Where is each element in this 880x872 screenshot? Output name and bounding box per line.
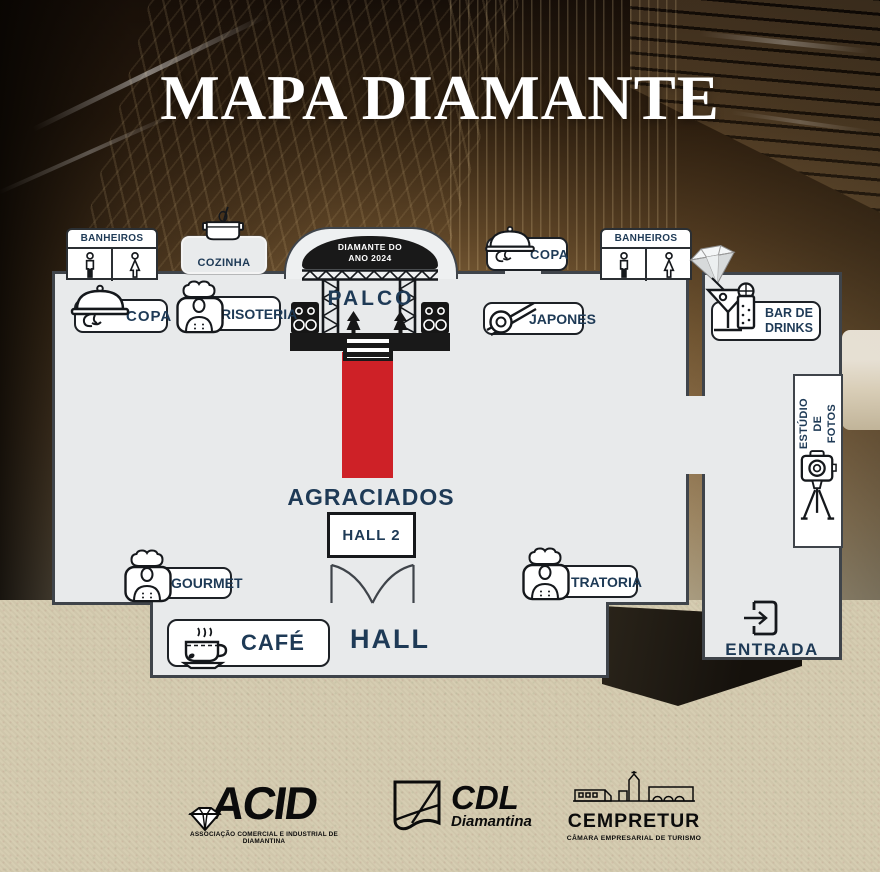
sushi-chopsticks-icon — [484, 296, 538, 338]
female-figure-icon — [127, 252, 143, 279]
estudio-de-fotos-label: ESTÚDIO DE FOTOS — [797, 399, 838, 450]
entrance-arrow-door-icon — [741, 597, 781, 639]
cempretur-wordmark: CEMPRETUR — [560, 810, 708, 833]
stage-plant-left-icon — [346, 311, 361, 334]
male-stall — [68, 249, 111, 281]
cloche-hand-icon — [482, 222, 538, 268]
chef-icon — [176, 280, 224, 334]
logo-cdl: CDL Diamantina — [385, 774, 540, 844]
cempretur-skyline-icon — [571, 770, 697, 808]
coffee-cup-icon — [178, 626, 232, 670]
camera-tripod-icon — [799, 450, 837, 532]
cozinha-label: COZINHA — [198, 257, 251, 272]
stage-plant-right-icon — [393, 311, 408, 334]
cloche-hand-icon — [67, 282, 133, 332]
hall2-box: HALL 2 — [327, 512, 416, 558]
cdl-wordmark: CDL — [451, 782, 532, 813]
female-figure-icon — [661, 252, 677, 279]
stair-steps — [347, 339, 389, 358]
cooking-pot-icon — [198, 205, 248, 245]
cdl-text-block: CDL Diamantina — [451, 782, 532, 830]
cempretur-tagline: CÂMARA EMPRESARIAL DE TURISMO — [560, 835, 708, 842]
speaker-right-icon — [420, 301, 450, 335]
banheiros-left-label: BANHEIROS — [68, 230, 156, 249]
banquet-table — [842, 330, 880, 430]
cdl-subtitle: Diamantina — [451, 813, 532, 830]
acid-diamond-icon — [185, 804, 225, 834]
doorway-opening-right — [684, 396, 707, 474]
cdl-page-icon — [385, 776, 449, 840]
hall-label: HALL — [320, 624, 460, 655]
double-door-icon — [329, 563, 416, 605]
agraciados-label: AGRACIADOS — [236, 484, 506, 511]
entrada-label: ENTRADA — [702, 640, 842, 660]
male-stall — [602, 249, 645, 281]
stage-stairs — [343, 336, 393, 361]
hall2-label: HALL 2 — [342, 527, 400, 544]
cocktail-icon — [700, 276, 768, 340]
banheiros-left: BANHEIROS — [66, 228, 158, 280]
venue-map-poster: MAPA DIAMANTE BANHEIROS — [0, 0, 880, 872]
logo-acid: ACID ASSOCIAÇÃO COMERCIAL E INDUSTRIAL D… — [175, 780, 353, 845]
logo-cempretur: CEMPRETUR CÂMARA EMPRESARIAL DE TURISMO — [560, 770, 708, 842]
female-stall — [111, 249, 156, 281]
banheiros-left-stalls — [68, 249, 156, 281]
male-figure-icon — [82, 252, 98, 279]
red-carpet — [342, 352, 393, 478]
chef-icon — [521, 547, 571, 601]
page-title: MAPA DIAMANTE — [0, 62, 880, 135]
male-figure-icon — [616, 252, 632, 279]
chef-icon — [124, 549, 172, 603]
